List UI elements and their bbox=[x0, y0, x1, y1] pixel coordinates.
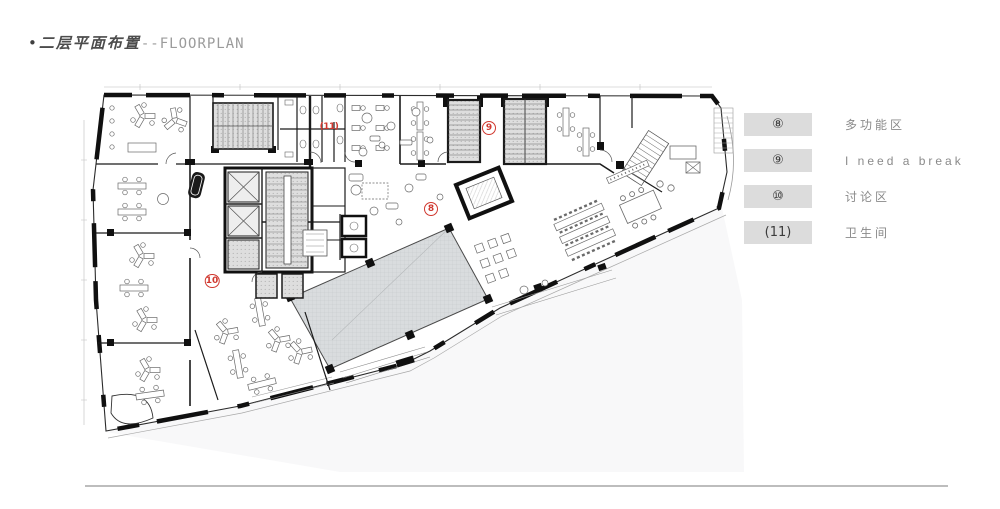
stair-mid-a bbox=[448, 100, 480, 162]
footer-divider bbox=[85, 485, 948, 487]
stair-top-left bbox=[213, 103, 273, 149]
legend-row-restroom: (11) 卫生间 bbox=[744, 221, 984, 244]
stair-mid-b bbox=[504, 99, 546, 164]
legend-key-number: ⑩ bbox=[772, 189, 784, 204]
legend: ⑧ 多功能区 ⑨ I need a break ⑩ 讨论区 (11) 卫生间 bbox=[744, 113, 984, 257]
legend-row-discussion: ⑩ 讨论区 bbox=[744, 185, 984, 208]
plan-marker-11: (11) bbox=[320, 120, 339, 134]
plan-marker-10: 10 bbox=[205, 274, 220, 288]
legend-row-break: ⑨ I need a break bbox=[744, 149, 984, 172]
legend-row-multifunction: ⑧ 多功能区 bbox=[744, 113, 984, 136]
legend-key-box: ⑧ bbox=[744, 113, 812, 136]
legend-label: 讨论区 bbox=[845, 188, 890, 205]
legend-label: 多功能区 bbox=[845, 116, 905, 133]
legend-key-box: ⑩ bbox=[744, 185, 812, 208]
plan-marker-9: 9 bbox=[482, 121, 496, 135]
legend-key-number: ⑧ bbox=[772, 117, 784, 132]
legend-key-box: (11) bbox=[744, 221, 812, 244]
legend-key-box: ⑨ bbox=[744, 149, 812, 172]
legend-key-number: ⑨ bbox=[772, 153, 784, 168]
legend-label: 卫生间 bbox=[845, 224, 890, 241]
legend-key-number: (11) bbox=[765, 225, 792, 240]
plan-marker-8: 8 bbox=[424, 202, 438, 216]
legend-label: I need a break bbox=[845, 154, 964, 168]
